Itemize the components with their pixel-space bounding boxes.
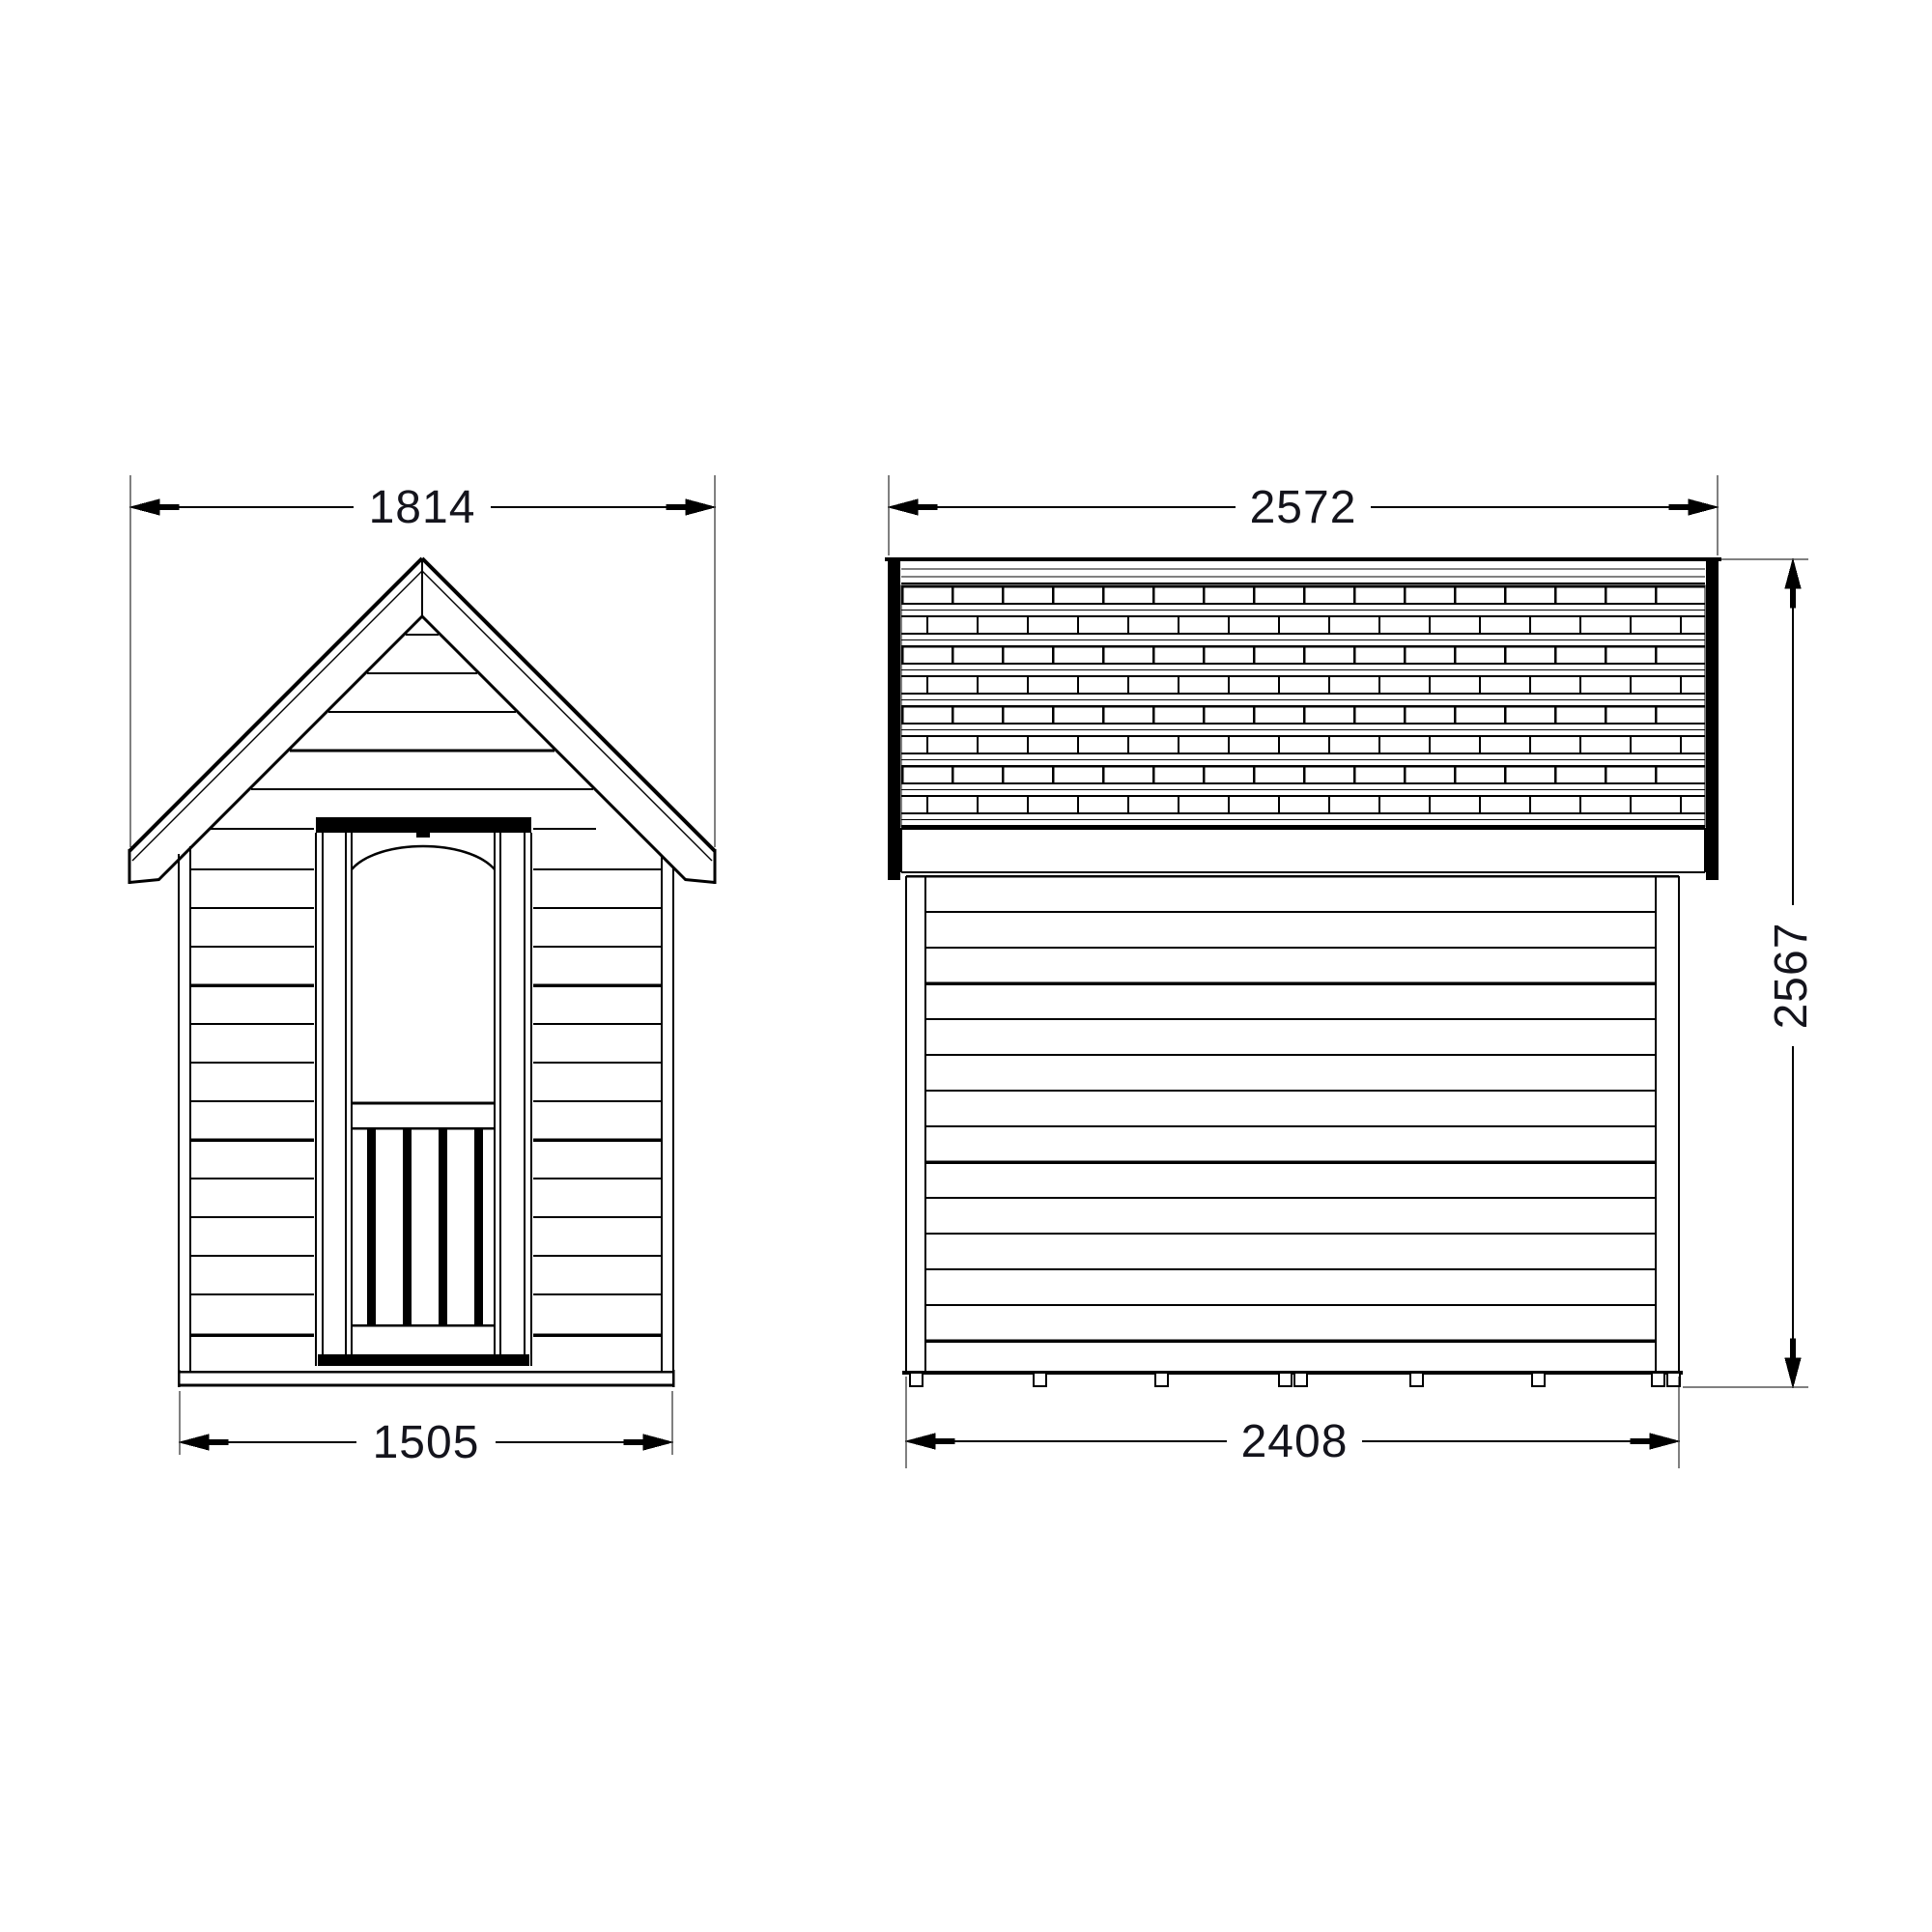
shed-technical-drawing: 1814 (0, 0, 1932, 1932)
left-bargeboard-edge (888, 558, 900, 880)
dim-label-side-base-length: 2408 (1241, 1416, 1349, 1467)
shed-dimension-drawing-page: 1814 (0, 0, 1932, 1932)
roof-shingles (901, 585, 1705, 827)
door-threshold (318, 1354, 529, 1366)
door-lintel (316, 817, 531, 833)
dim-label-side-height: 2567 (1766, 923, 1817, 1030)
dim-label-side-roof-length: 2572 (1250, 482, 1357, 533)
background (0, 0, 1932, 1932)
dim-label-front-roof-width: 1814 (369, 482, 476, 533)
arch-keystone (416, 831, 430, 838)
dim-label-front-body-width: 1505 (373, 1417, 480, 1468)
right-bargeboard-edge (1706, 558, 1719, 880)
